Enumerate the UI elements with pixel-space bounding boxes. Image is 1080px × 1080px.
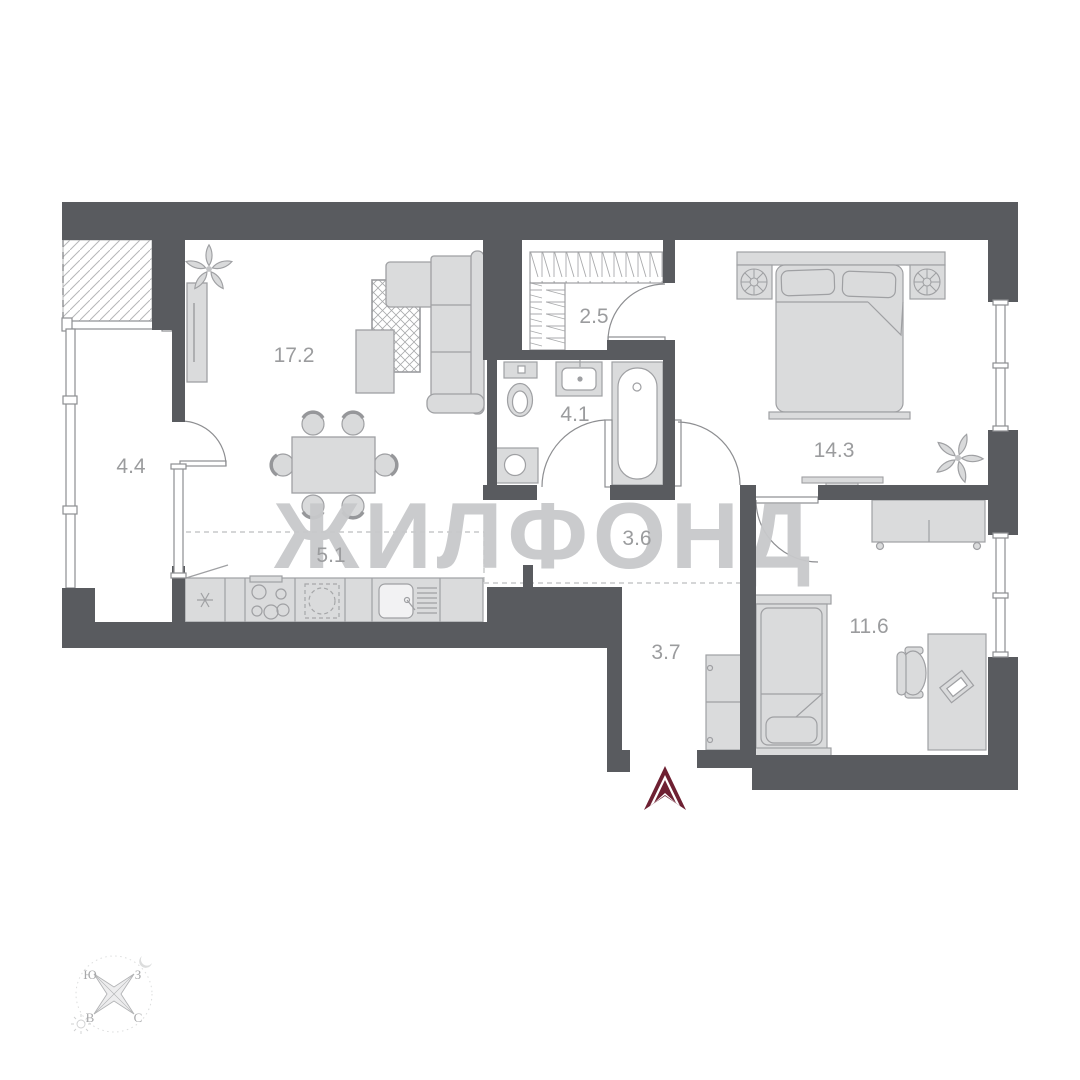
compass-south: Ю <box>83 967 96 982</box>
compass-north: С <box>134 1010 143 1025</box>
single-bed <box>752 595 831 757</box>
cabinet <box>872 500 985 550</box>
bathtub-icon <box>612 362 663 485</box>
bathroom-sink-icon <box>556 357 602 396</box>
corridor-label: 3.7 <box>651 641 680 664</box>
bathroom-door <box>542 420 612 487</box>
balcony-glazing <box>63 329 77 588</box>
wardrobe-door <box>608 284 665 344</box>
kitchen-label: 5.1 <box>316 544 345 567</box>
wardrobe-label: 2.5 <box>579 305 608 328</box>
headboard <box>737 252 945 265</box>
toilet-icon <box>504 362 537 417</box>
pillow <box>842 271 896 298</box>
compass-rose-icon: Ю З В С <box>71 956 152 1034</box>
compass-west: З <box>135 967 142 982</box>
agency-watermark: ЖИЛФОНД <box>273 483 816 588</box>
wardrobe-unit <box>530 252 663 350</box>
bed-base <box>769 412 910 419</box>
footboard <box>752 595 831 604</box>
counter-flap <box>186 565 228 578</box>
hall-label: 3.6 <box>622 527 651 550</box>
living-room-label: 17.2 <box>274 344 315 367</box>
balcony-door <box>180 421 226 466</box>
balcony-door-window <box>171 464 186 578</box>
pillow <box>781 269 835 296</box>
bedroom-door <box>674 420 740 486</box>
hall-dresser <box>706 655 743 750</box>
floor-plan-image: ЖИЛФОНД <box>0 0 1080 1080</box>
double-bed <box>737 252 945 419</box>
bedroom-label: 14.3 <box>814 439 855 462</box>
bedside-lamp-icon <box>741 269 767 295</box>
office-chair <box>897 647 926 698</box>
bathroom-label: 4.1 <box>560 403 589 426</box>
balcony-label: 4.4 <box>116 455 146 478</box>
bedside-lamp-icon <box>914 269 940 295</box>
second-room-label: 11.6 <box>849 615 888 638</box>
neighbor-balcony-hatch <box>63 240 152 322</box>
bedroom-window <box>993 300 1008 431</box>
pillow <box>766 717 817 743</box>
coffee-table <box>356 330 394 393</box>
plant-icon <box>927 426 990 488</box>
entrance-arrow-icon <box>644 766 686 810</box>
second-room-window <box>993 533 1008 657</box>
washing-machine-icon <box>492 448 538 483</box>
tv-panel <box>187 283 207 382</box>
floorplan-page: ЖИЛФОНД <box>0 0 1080 1080</box>
compass-east: В <box>86 1010 95 1025</box>
